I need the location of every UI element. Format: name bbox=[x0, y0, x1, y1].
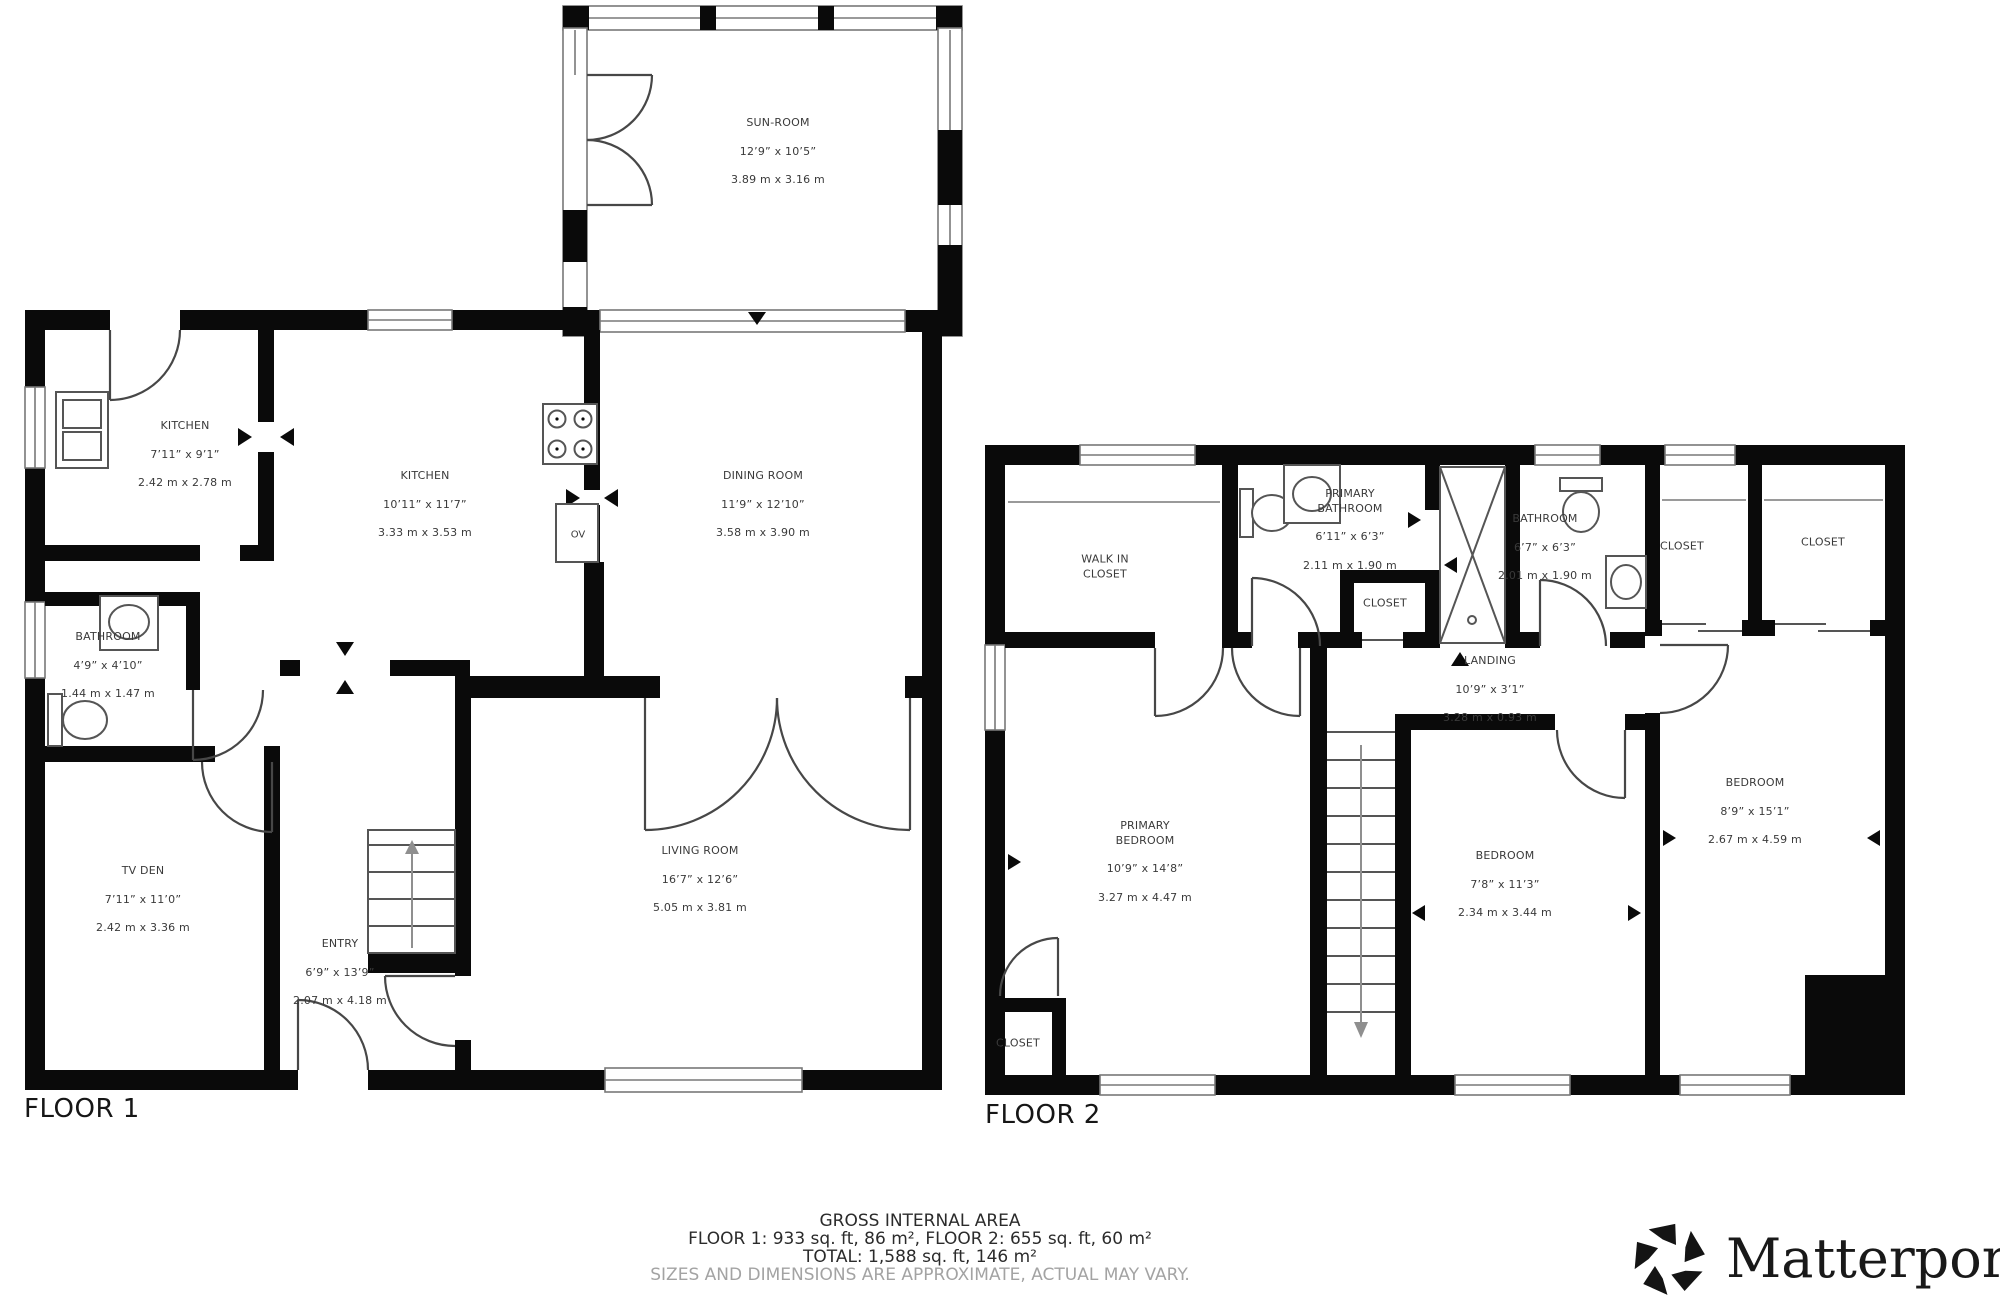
room-label-primary-bathroom: PRIMARY BATHROOM 6’11” x 6’3” 2.11 m x 1… bbox=[1303, 473, 1397, 587]
floor-areas: FLOOR 1: 933 sq. ft, 86 m², FLOOR 2: 655… bbox=[420, 1230, 1420, 1248]
floor2-title: FLOOR 2 bbox=[985, 1100, 1101, 1130]
matterport-logo-icon bbox=[1626, 1220, 1712, 1297]
room-label-bedroom-mid: BEDROOM 7’8” x 11’3” 2.34 m x 3.44 m bbox=[1458, 835, 1552, 935]
room-label-landing: LANDING 10’9” x 3’1” 3.28 m x 0.93 m bbox=[1443, 640, 1537, 740]
room-label-bathroom-f1: BATHROOM 4’9” x 4’10” 1.44 m x 1.47 m bbox=[61, 616, 155, 716]
room-label-closet-3: CLOSET bbox=[1801, 522, 1845, 565]
room-label-closet-1: CLOSET bbox=[1363, 583, 1407, 626]
room-label-sun-room: SUN-ROOM 12’9” x 10’5” 3.89 m x 3.16 m bbox=[731, 102, 825, 202]
shower-icon bbox=[1440, 467, 1505, 643]
room-label-kitchen-small: KITCHEN 7’11” x 9’1” 2.42 m x 2.78 m bbox=[138, 405, 232, 505]
room-label-kitchen-main: KITCHEN 10’11” x 11’7” 3.33 m x 3.53 m bbox=[378, 455, 472, 555]
room-label-dining-room: DINING ROOM 11’9” x 12’10” 3.58 m x 3.90… bbox=[716, 455, 810, 555]
room-label-walk-in-closet: WALK IN CLOSET bbox=[1081, 538, 1129, 595]
room-label-living-room: LIVING ROOM 16’7” x 12’6” 5.05 m x 3.81 … bbox=[653, 830, 747, 930]
room-label-primary-bedroom: PRIMARY BEDROOM 10’9” x 14’8” 3.27 m x 4… bbox=[1098, 805, 1192, 919]
bathroom2-sink-icon bbox=[1606, 556, 1646, 608]
matterport-wordmark: Matterport® bbox=[1726, 1232, 2000, 1286]
matterport-logo: Matterport® bbox=[1626, 1220, 2000, 1297]
floorplan-page: SUN-ROOM 12’9” x 10’5” 3.89 m x 3.16 m K… bbox=[0, 0, 2000, 1297]
stairs-down-icon bbox=[1327, 732, 1395, 1038]
disclaimer: SIZES AND DIMENSIONS ARE APPROXIMATE, AC… bbox=[420, 1266, 1420, 1284]
room-label-closet-4: CLOSET bbox=[996, 1023, 1040, 1066]
room-label-bedroom-right: BEDROOM 8’9” x 15’1” 2.67 m x 4.59 m bbox=[1708, 762, 1802, 862]
room-label-bathroom-f2: BATHROOM 6’7” x 6’3” 2.01 m x 1.90 m bbox=[1498, 498, 1592, 598]
area-summary: GROSS INTERNAL AREA FLOOR 1: 933 sq. ft,… bbox=[420, 1212, 1420, 1284]
stove-icon bbox=[543, 404, 597, 464]
total-area: TOTAL: 1,588 sq. ft, 146 m² bbox=[420, 1248, 1420, 1266]
room-label-tv-den: TV DEN 7’11” x 11’0” 2.42 m x 3.36 m bbox=[96, 850, 190, 950]
gross-internal-area-heading: GROSS INTERNAL AREA bbox=[420, 1212, 1420, 1230]
french-doors bbox=[587, 75, 652, 205]
room-label-entry: ENTRY 6’9” x 13’9” 2.07 m x 4.18 m bbox=[293, 923, 387, 1023]
oven-label: OV bbox=[571, 530, 586, 541]
room-label-closet-2: CLOSET bbox=[1660, 526, 1704, 569]
floor1-title: FLOOR 1 bbox=[24, 1094, 140, 1124]
kitchen-sink-icon bbox=[56, 392, 108, 468]
